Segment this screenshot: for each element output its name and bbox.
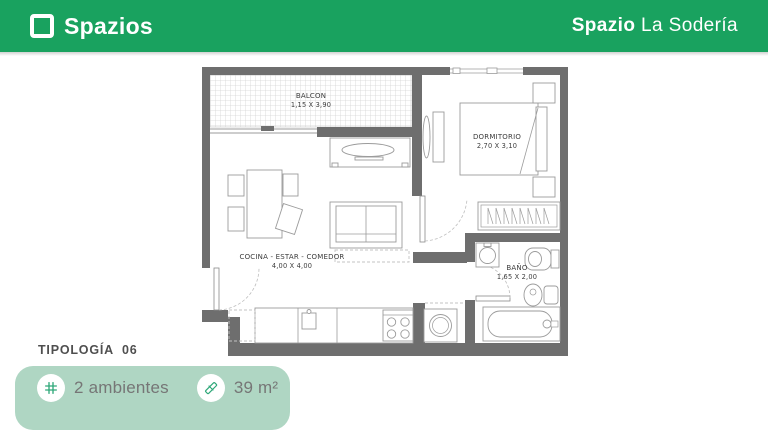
bedroom-window <box>450 67 523 75</box>
project-title-bold: Spazio <box>572 15 636 36</box>
bedroom-door <box>420 196 467 242</box>
floorplan: BALCON 1,15 X 3,90 DORMITORIO 2,70 X 3,1… <box>195 60 575 365</box>
typology-title: TIPOLOGÍA 06 <box>38 343 138 357</box>
brand-name: Spazios <box>64 13 153 40</box>
feature-ambientes: 2 ambientes <box>37 374 169 402</box>
feature-card: 2 ambientes 39 m² <box>15 366 290 430</box>
bedroom-label: DORMITORIO <box>473 133 521 141</box>
bedroom-furniture <box>423 83 560 230</box>
kitchen-counter <box>229 308 413 343</box>
project-title: Spazio La Sodería <box>572 15 738 37</box>
project-title-rest: La Sodería <box>635 15 738 36</box>
living-dims: 4,00 X 4,00 <box>272 262 312 270</box>
balcony-label: BALCON <box>296 92 326 100</box>
feature-ambientes-label: 2 ambientes <box>74 378 169 398</box>
spazios-logo-icon <box>30 14 54 38</box>
bathroom-fixtures <box>476 243 560 341</box>
living-label: COCINA - ESTAR - COMEDOR <box>239 253 344 261</box>
brand: Spazios <box>30 13 153 40</box>
floorplan-drawing: BALCON 1,15 X 3,90 DORMITORIO 2,70 X 3,1… <box>195 60 575 360</box>
ruler-icon <box>197 374 225 402</box>
living-furniture <box>228 138 410 262</box>
bedroom-dims: 2,70 X 3,10 <box>477 142 517 150</box>
bathroom-door <box>476 264 510 301</box>
bathroom-dims: 1,65 X 2,00 <box>497 273 537 281</box>
laundry-washer <box>424 303 463 342</box>
app-header: Spazios Spazio La Sodería <box>0 0 768 52</box>
feature-superficie-label: 39 m² <box>234 378 278 398</box>
grid-icon <box>37 374 65 402</box>
bathroom-label: BAÑO <box>506 263 527 272</box>
entrance-door <box>214 268 259 310</box>
balcony-dims: 1,15 X 3,90 <box>291 101 331 109</box>
feature-superficie: 39 m² <box>197 374 278 402</box>
page: Spazios Spazio La Sodería <box>0 0 768 432</box>
